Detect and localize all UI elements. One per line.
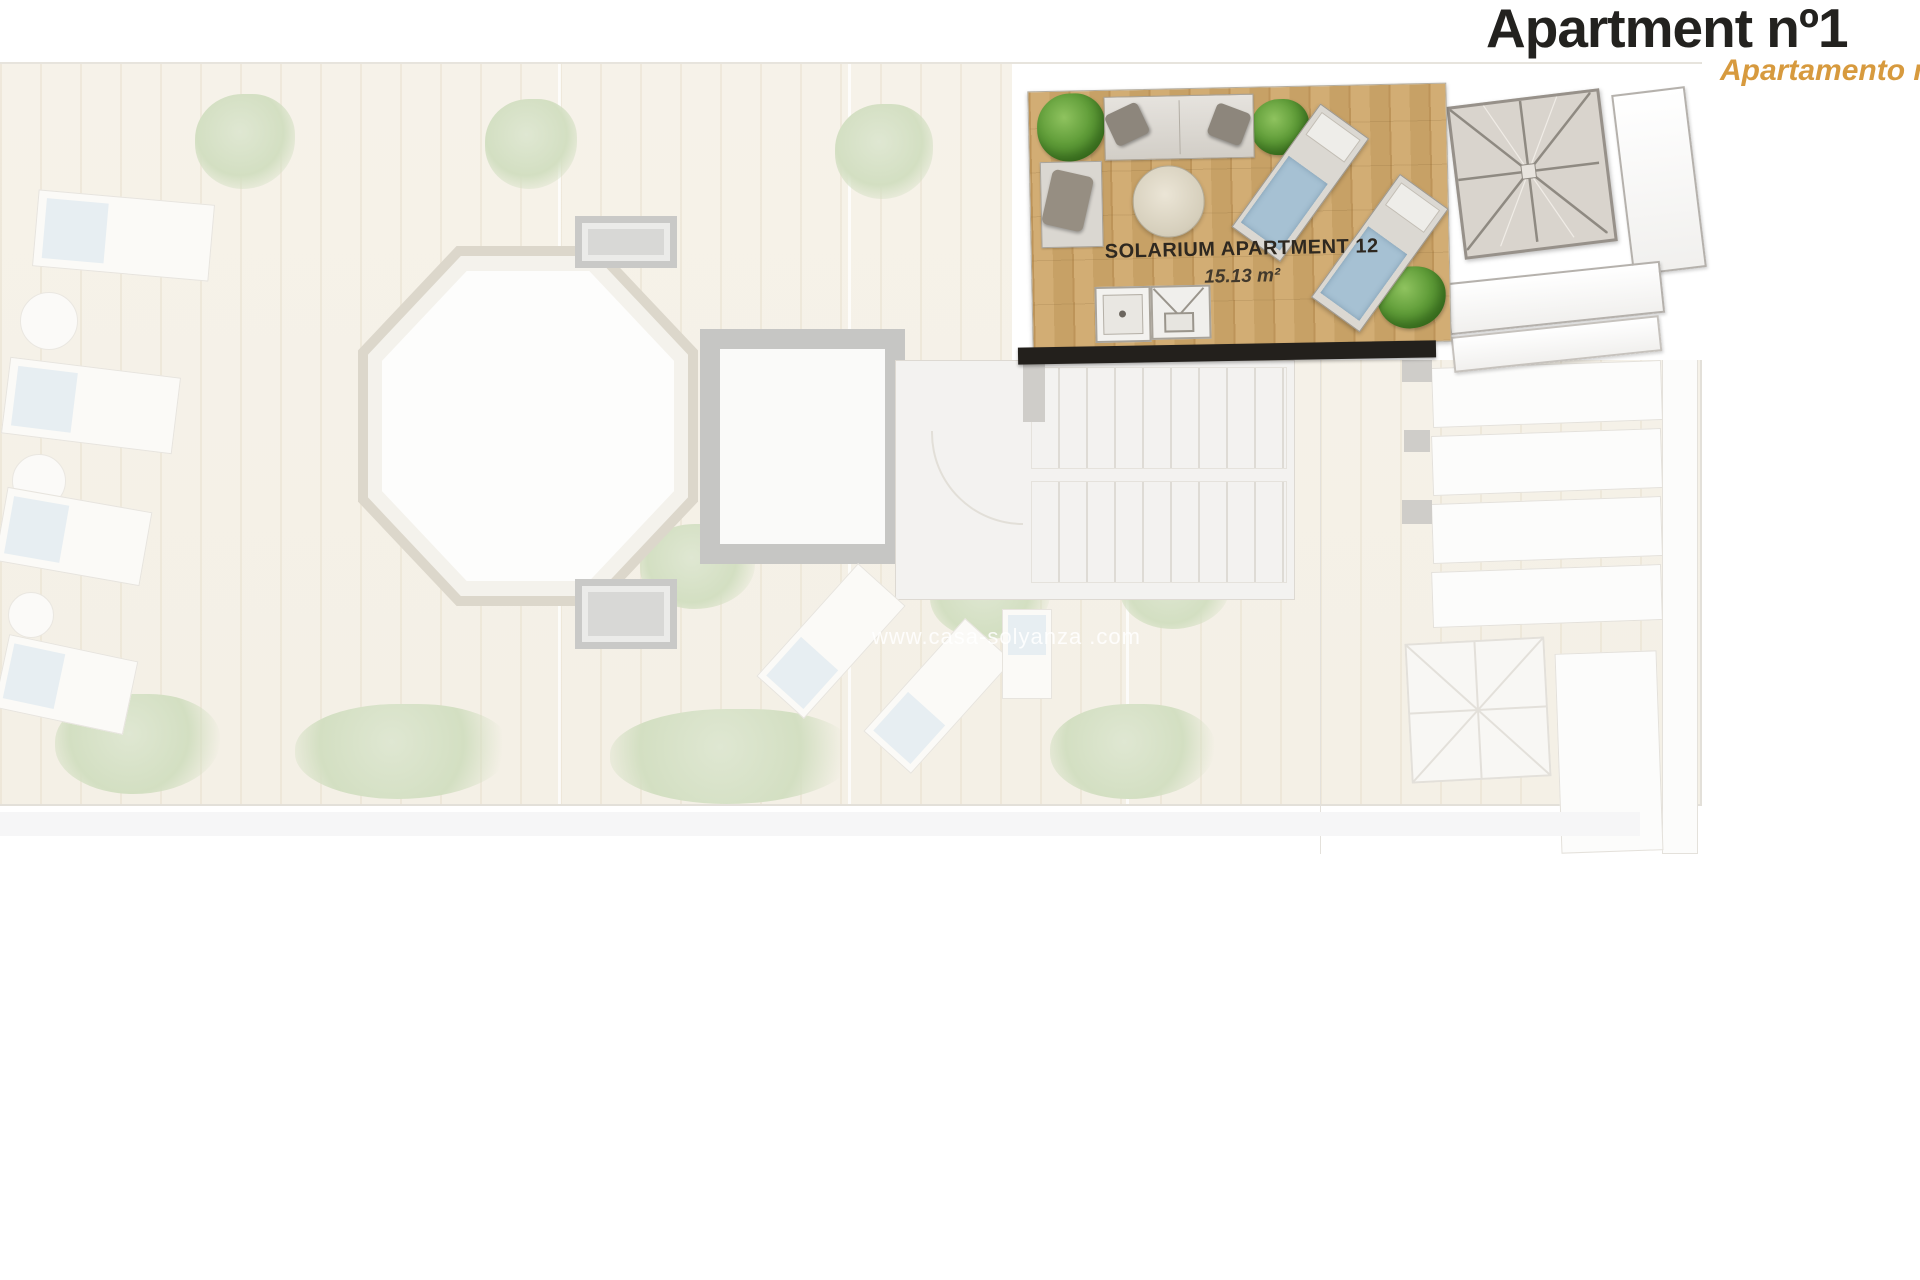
storage-box-icon xyxy=(1150,285,1211,340)
round-table-icon xyxy=(1132,165,1205,238)
planter-icon xyxy=(575,579,677,649)
storage-box-lines xyxy=(1152,287,1205,334)
lounger-pillow xyxy=(1385,182,1440,233)
stairs-icon xyxy=(1031,367,1287,469)
tree-icon xyxy=(835,104,933,199)
roof-band xyxy=(1431,428,1663,496)
wall-stub xyxy=(1404,430,1430,452)
page-title: Apartment nº1 xyxy=(1486,0,1848,60)
planter-inner xyxy=(588,592,664,636)
towel xyxy=(42,198,109,263)
sofa-icon xyxy=(1103,94,1254,161)
sofa-seam xyxy=(1179,100,1181,154)
towel xyxy=(873,692,945,764)
shower-tray-icon xyxy=(1094,286,1151,343)
watermark: www.casa-solyanza .com xyxy=(872,624,1141,650)
pillow-icon xyxy=(1206,102,1252,147)
plant-icon xyxy=(1036,93,1105,162)
sun-lounger-faint xyxy=(1,357,181,454)
tree-icon xyxy=(610,709,855,804)
round-table-faint xyxy=(8,592,54,638)
towel xyxy=(3,643,66,709)
pool-water xyxy=(382,271,674,581)
roof-opening xyxy=(700,329,905,564)
roof-band xyxy=(1431,564,1663,628)
wall-stub xyxy=(1402,360,1432,382)
towel xyxy=(4,496,69,563)
hip-roof-icon xyxy=(1446,88,1618,260)
wall-stub xyxy=(1402,500,1432,524)
towel xyxy=(11,366,78,433)
floorplan-image: Apartment nº1 Apartamento nº xyxy=(0,0,1920,1280)
wall-stub xyxy=(1023,360,1045,422)
planter-inner xyxy=(588,229,664,255)
lounger-pillow xyxy=(1305,112,1360,163)
sun-lounger-faint xyxy=(1002,609,1052,699)
sun-lounger-faint xyxy=(32,189,215,281)
armchair-cushion xyxy=(1041,169,1094,233)
round-table-faint xyxy=(20,292,78,350)
tree-icon xyxy=(1050,704,1215,799)
page-subtitle: Apartamento nº xyxy=(1720,54,1920,88)
sun-lounger-faint xyxy=(0,487,152,586)
towel xyxy=(766,637,838,709)
stairs-icon xyxy=(1031,481,1287,583)
hip-roof-lines xyxy=(1450,92,1608,250)
sun-lounger-faint xyxy=(0,634,138,735)
solarium-apartment-12: SOLARIUM APARTMENT 12 15.13 m² xyxy=(1027,83,1451,351)
hip-roof-faint-icon xyxy=(1404,636,1551,783)
pillow-icon xyxy=(1104,101,1151,147)
stairwell-room-faint xyxy=(895,360,1295,600)
tree-icon xyxy=(295,704,510,799)
tree-icon xyxy=(195,94,295,189)
roof-plan: SOLARIUM APARTMENT 12 15.13 m² www.casa-… xyxy=(0,62,1702,806)
tree-icon xyxy=(485,99,577,189)
wall-line xyxy=(1320,360,1321,854)
armchair-icon xyxy=(1040,161,1104,248)
roof-band xyxy=(1431,496,1663,564)
planter-icon xyxy=(575,216,677,268)
door-swing-arc xyxy=(931,431,1023,525)
lower-roof-edge-faint xyxy=(0,812,1640,836)
